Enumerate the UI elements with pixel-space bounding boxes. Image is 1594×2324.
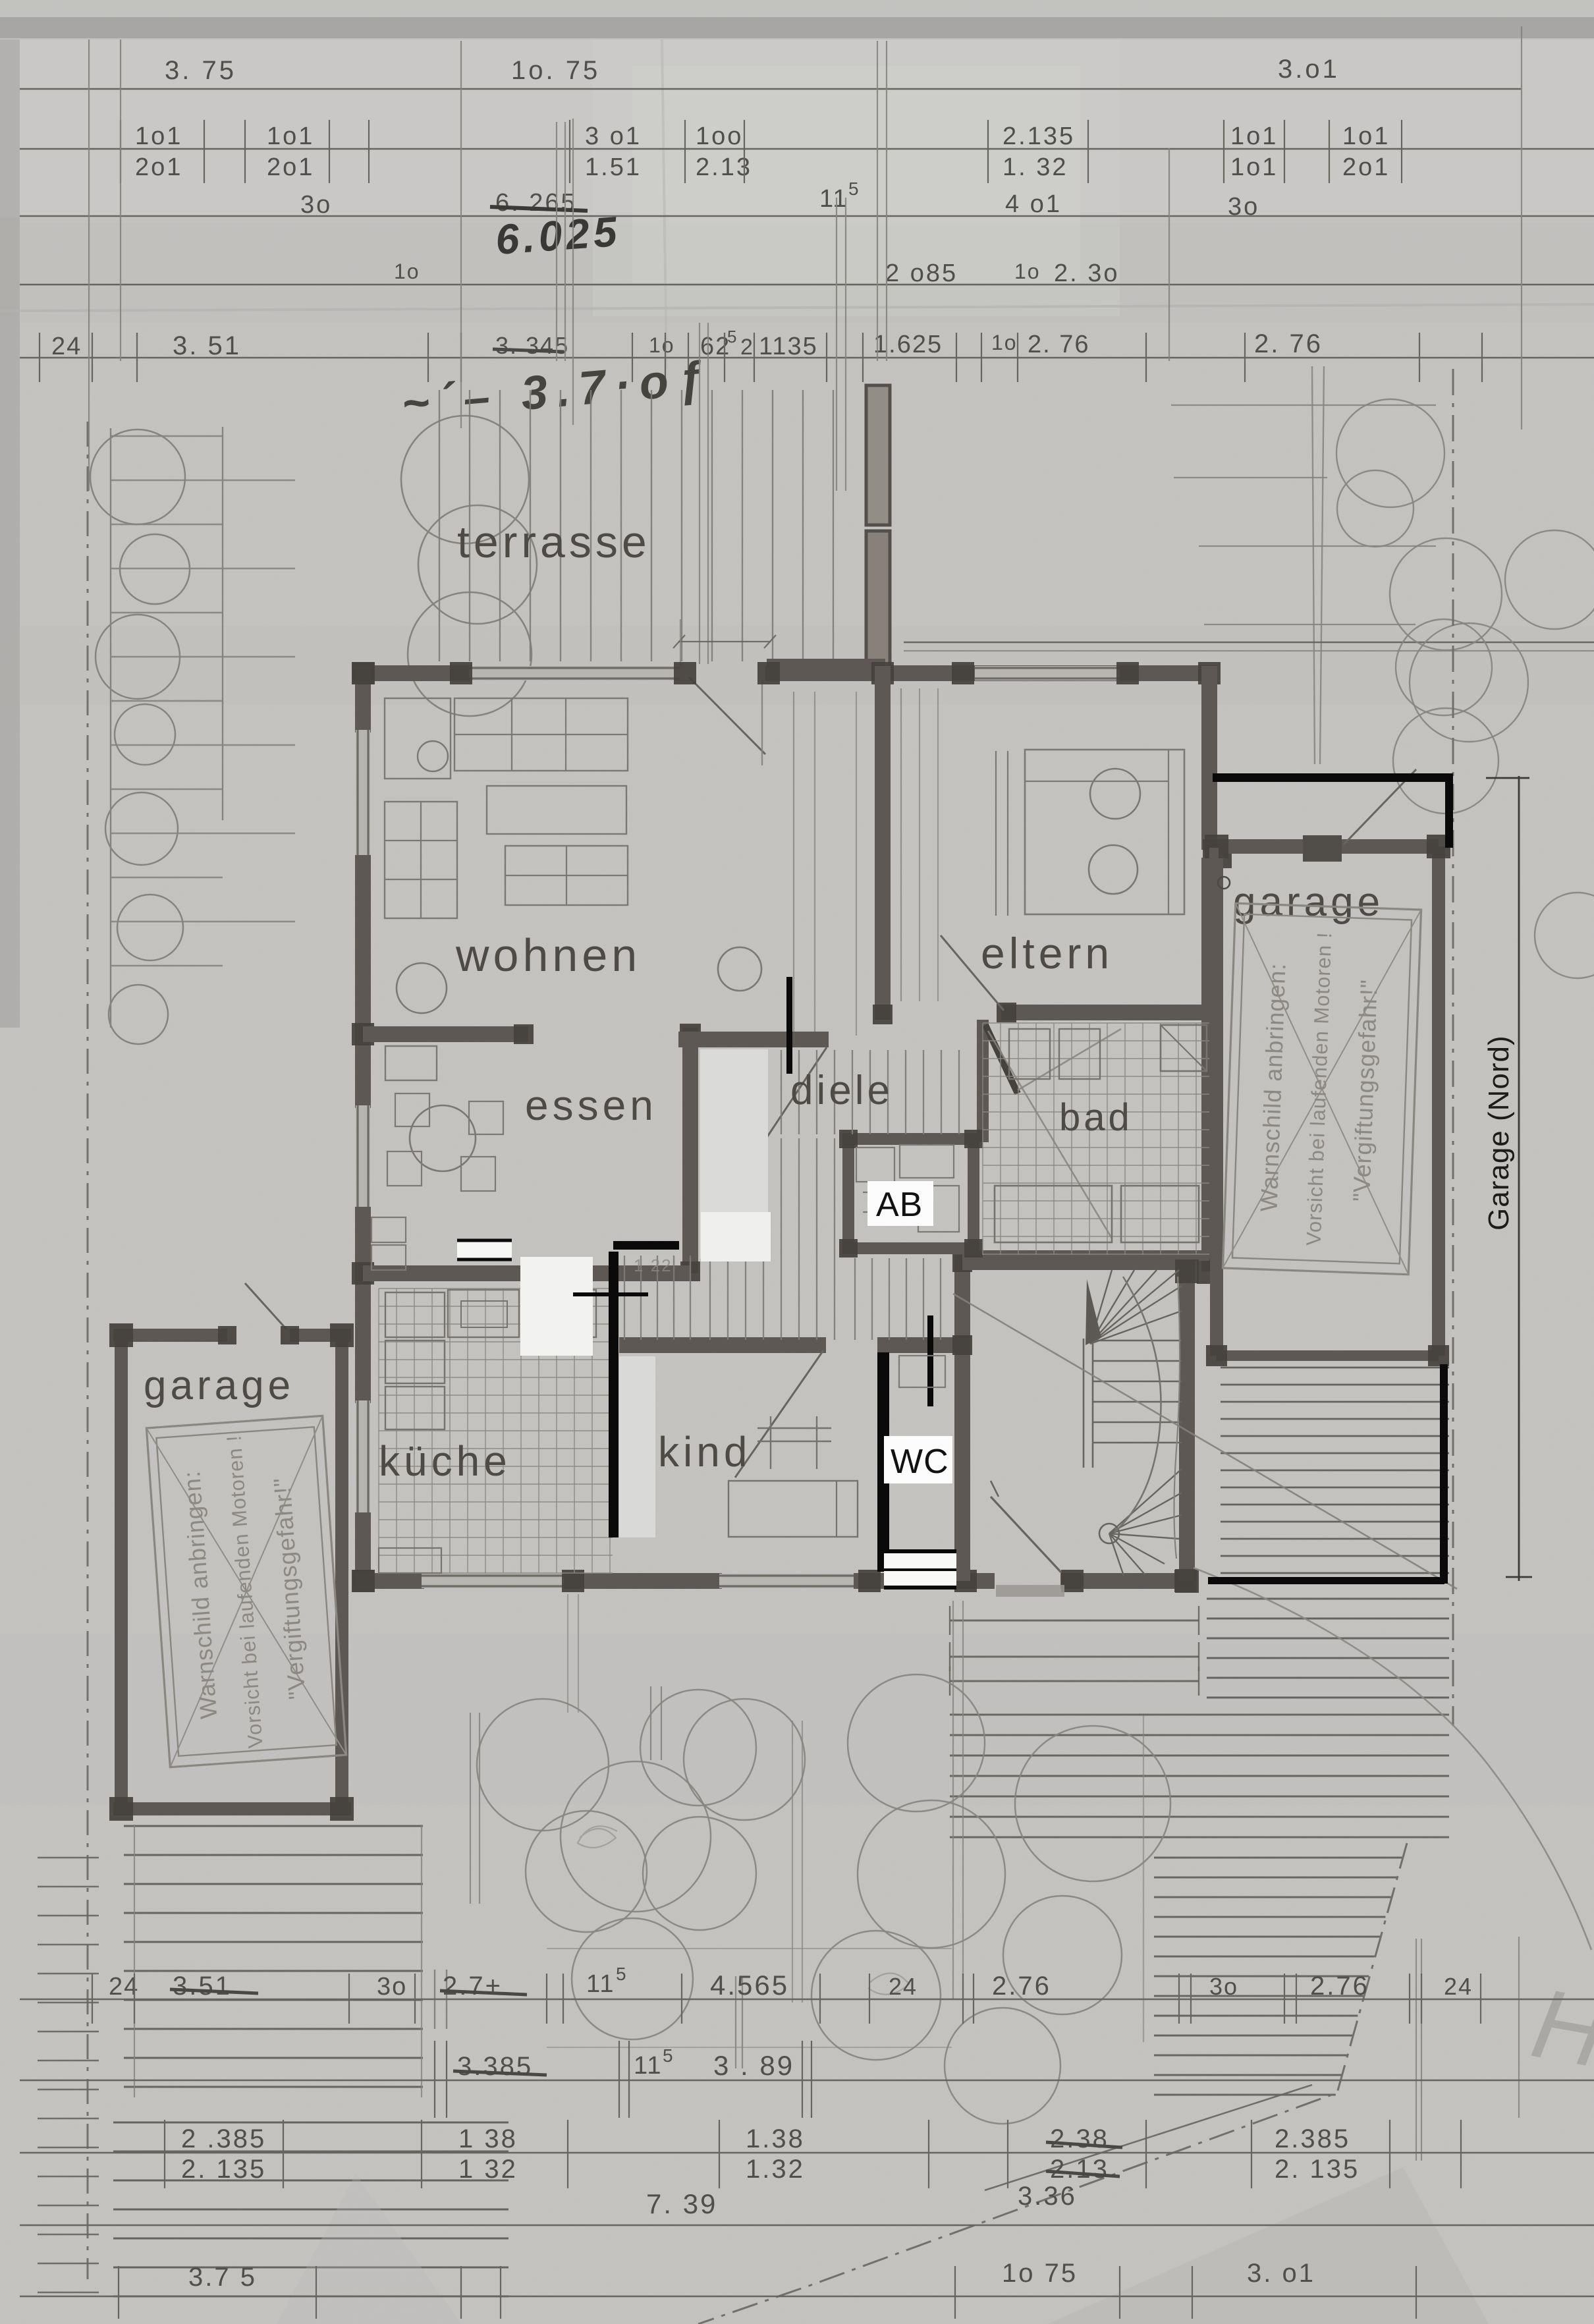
svg-text:kind: kind [658,1428,751,1476]
svg-text:1135: 1135 [759,333,818,360]
svg-text:terrasse: terrasse [457,517,651,567]
svg-text:bad: bad [1059,1096,1133,1139]
svg-text:1 22: 1 22 [634,1256,673,1275]
svg-text:1.32: 1.32 [746,2155,805,2184]
svg-text:1.51: 1.51 [585,153,642,181]
svg-text:1 38: 1 38 [458,2124,518,2153]
svg-text:2 .385: 2 .385 [181,2124,266,2153]
svg-text:5: 5 [727,327,737,346]
svg-text:1o 75: 1o 75 [1002,2259,1078,2288]
svg-text:Garage (Nord): Garage (Nord) [1483,1035,1515,1231]
svg-text:garage: garage [144,1363,294,1408]
svg-text:WC: WC [891,1443,949,1481]
svg-text:2.38: 2.38 [1050,2124,1109,2153]
svg-text:2. 76: 2. 76 [1028,331,1090,358]
svg-text:1o1: 1o1 [1230,123,1278,150]
svg-text:4 o1: 4 o1 [1005,190,1062,218]
svg-text:1oo: 1oo [696,123,743,150]
svg-text:5: 5 [616,1964,627,1984]
svg-text:2.13: 2.13 [1050,2155,1109,2184]
svg-text:2: 2 [740,335,754,360]
svg-text:3.51: 3.51 [173,1972,232,2001]
svg-text:3o: 3o [1209,1973,1238,2000]
svg-text:2o1: 2o1 [1342,153,1390,181]
svg-text:4.565: 4.565 [710,1970,789,2001]
svg-text:2 o85: 2 o85 [885,260,958,287]
svg-text:24: 24 [51,333,82,360]
svg-text:5: 5 [848,179,860,199]
svg-text:1o: 1o [394,260,420,283]
svg-text:3. o1: 3. o1 [1247,2259,1315,2288]
svg-text:11: 11 [634,2052,662,2080]
svg-text:2. 135: 2. 135 [1275,2155,1360,2184]
svg-text:1o: 1o [649,333,675,357]
svg-text:essen: essen [525,1082,657,1129]
svg-text:2o1: 2o1 [135,153,182,181]
svg-text:3 o1: 3 o1 [585,123,642,150]
svg-text:2.385: 2.385 [1275,2124,1350,2153]
svg-text:3.36: 3.36 [1018,2182,1077,2211]
svg-text:2.76: 2.76 [992,1972,1051,2001]
svg-text:1. 32: 1. 32 [1003,153,1068,181]
svg-text:5: 5 [663,2045,674,2066]
svg-text:3o: 3o [300,191,332,219]
svg-text:küche: küche [379,1437,511,1485]
svg-text:2. 76: 2. 76 [1254,329,1323,358]
svg-text:3.o1: 3.o1 [1278,55,1340,84]
svg-text:2o1: 2o1 [267,153,314,181]
svg-text:1o1: 1o1 [135,123,182,150]
svg-text:eltern: eltern [981,929,1113,978]
svg-text:1o1: 1o1 [1230,153,1278,181]
svg-text:3. 345: 3. 345 [495,332,569,359]
svg-text:24: 24 [1444,1973,1473,2000]
svg-text:1o. 75: 1o. 75 [511,56,600,85]
svg-text:1.38: 1.38 [746,2124,805,2153]
svg-text:7. 39: 7. 39 [646,2188,717,2219]
svg-text:3 . 89: 3 . 89 [713,2050,794,2081]
svg-text:3.385: 3.385 [457,2052,533,2081]
svg-text:1o1: 1o1 [267,123,314,150]
svg-text:wohnen: wohnen [455,929,641,981]
svg-text:AB: AB [876,1186,923,1224]
svg-text:diele: diele [790,1068,893,1113]
svg-text:3.7 5: 3.7 5 [188,2263,257,2292]
svg-text:3. 75: 3. 75 [165,56,236,85]
svg-text:2.135: 2.135 [1003,123,1075,150]
svg-text:6.025: 6.025 [494,207,622,263]
svg-text:2.7+: 2.7+ [443,1972,503,2001]
svg-text:1.625: 1.625 [873,331,943,358]
svg-text:1o: 1o [991,331,1018,354]
svg-text:11: 11 [586,1970,615,1998]
svg-text:24: 24 [889,1973,918,2000]
svg-text:2.76: 2.76 [1310,1972,1369,2001]
svg-text:11: 11 [819,185,848,213]
svg-text:3. 51: 3. 51 [173,331,241,360]
svg-text:2. 3o: 2. 3o [1054,260,1120,287]
svg-text:1 32: 1 32 [458,2155,518,2184]
svg-text:2. 135: 2. 135 [181,2155,266,2184]
svg-text:3o: 3o [377,1973,407,2001]
svg-text:3o: 3o [1228,193,1259,221]
svg-text:1o1: 1o1 [1342,123,1390,150]
svg-text:1o: 1o [1014,260,1041,283]
